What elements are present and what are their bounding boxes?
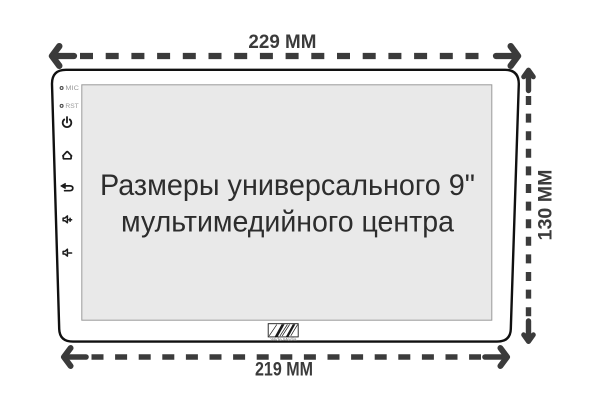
- svg-text:Размеры универсального 9": Размеры универсального 9": [100, 169, 475, 202]
- svg-text:Wide Media: Wide Media: [271, 337, 298, 342]
- svg-text:RST: RST: [65, 103, 79, 110]
- svg-text:219 ММ: 219 ММ: [255, 360, 313, 381]
- svg-text:MIC: MIC: [65, 85, 79, 92]
- svg-text:229 ММ: 229 ММ: [248, 32, 316, 53]
- svg-text:130 ММ: 130 ММ: [536, 170, 557, 241]
- svg-text:мультимедийного центра: мультимедийного центра: [121, 206, 454, 239]
